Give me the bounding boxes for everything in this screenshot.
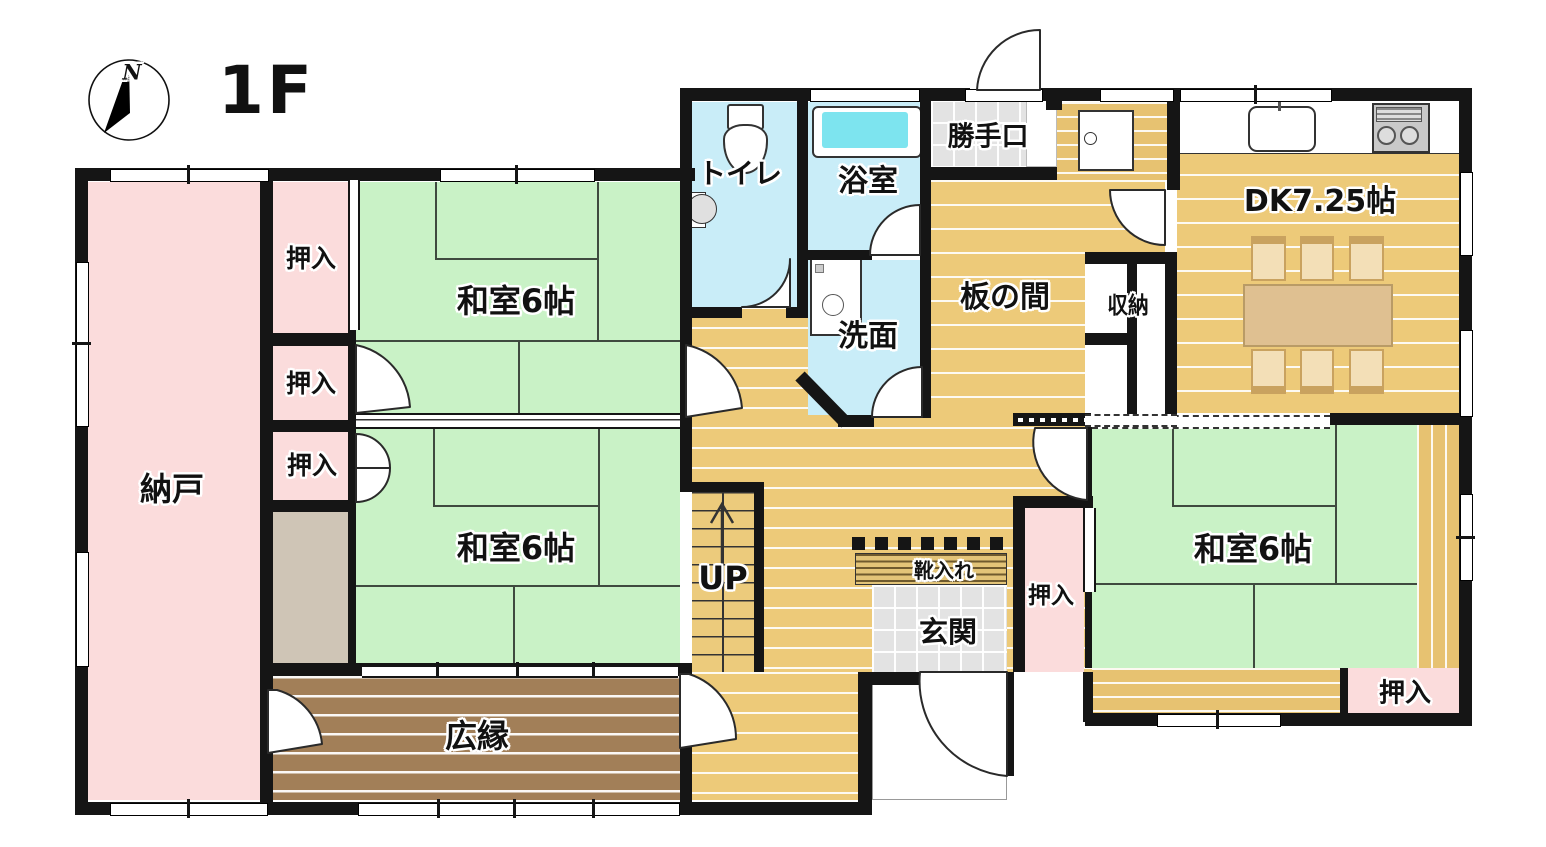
slider-tick [516,662,519,677]
wall [692,307,742,318]
label-shuno: 収納 [1107,286,1148,320]
window [1460,330,1473,417]
wall [858,672,872,815]
wall [262,420,356,432]
window [76,552,89,667]
dining-chair [1251,236,1286,281]
dotted-marker [852,537,865,550]
sliding-door [348,180,360,330]
wall [260,168,273,802]
window-tick [1456,536,1475,539]
compass-north-label: N [122,60,141,85]
wall [1046,90,1062,110]
label-kutsuire: 靴入れ [914,555,974,584]
wall [1013,496,1025,672]
sliding-glass-door [362,665,678,678]
wall [1340,668,1348,713]
label-genkan: 玄関 [919,609,977,651]
tatami-line [518,340,520,413]
window-tick [513,799,516,818]
dining-chair [1300,236,1334,281]
wall [1165,252,1177,420]
label-bath: 浴室 [838,156,898,200]
floor-plan: N 1F 納戸 押入 押入 押入 和室6帖 和室6帖 和室6帖 広縁 トイレ 浴… [0,0,1546,847]
dining-chair [1300,349,1334,394]
wall [680,101,692,482]
wall-dotted-rail [1018,418,1088,422]
tatami-line [1335,425,1337,583]
hallway-south-floor [692,672,858,800]
slider-tick [436,662,439,677]
label-hiroen: 広縁 [445,711,509,757]
label-oshiire-1: 押入 [286,239,336,275]
label-senmen: 洗面 [838,311,898,355]
tatami-line [513,585,515,663]
dotted-marker [967,537,980,550]
wall [808,250,872,260]
dotted-marker [990,537,1003,550]
label-oshiire-4: 押入 [1028,576,1074,610]
label-oshiire-3: 押入 [287,446,337,482]
wall [680,482,764,492]
tatami-line [598,425,600,585]
katteguchi-door [977,30,1040,90]
dotted-marker [875,537,888,550]
window-tick [187,165,190,184]
wall [754,492,764,672]
window-tick [515,165,518,184]
washing-machine-dial [815,264,824,273]
window-tick [72,342,91,345]
sliding-door-rail [1085,414,1177,427]
window-tick [1254,85,1257,104]
label-katteguchi: 勝手口 [948,115,1029,154]
label-washitsu-3: 和室6帖 [1194,524,1312,570]
tatami-line [356,585,680,587]
wall [797,101,808,318]
window [1460,172,1473,256]
window [810,89,920,102]
stove-grill [1376,107,1422,122]
dotted-marker [944,537,957,550]
sliding-door [1083,508,1096,592]
window-tick [187,799,190,818]
kitchen-sink [1248,106,1316,152]
wall [858,672,920,685]
wall [348,418,356,668]
stove-burner-left [1377,126,1396,145]
dotted-marker [921,537,934,550]
label-oshiire-5: 押入 [1379,673,1431,710]
label-up: UP [698,559,747,597]
label-itanoma: 板の間 [960,272,1050,316]
stove-burner-right [1400,126,1419,145]
wall [922,167,1057,180]
tatami-line [597,182,599,340]
window-tick [592,799,595,818]
wall [262,500,356,512]
dining-table [1243,284,1393,347]
window-tick [437,799,440,818]
wall [1085,333,1133,345]
tatami-line [433,505,598,507]
label-toilet: トイレ [698,152,782,192]
katteguchi-mat [1026,100,1057,167]
wall [1085,252,1177,264]
dining-chair [1349,236,1384,281]
window [1157,714,1281,727]
engawa-bottom-floor [1092,668,1340,713]
entrance-porch [872,672,1007,800]
wall [838,415,874,427]
wall [1330,413,1472,425]
label-oshiire-2: 押入 [286,364,336,400]
label-dk: DK7.25帖 [1244,176,1396,220]
tatami-line [433,425,435,505]
tatami-line [1253,583,1255,668]
tatami-line [1092,583,1417,585]
water-heater-knob [1084,132,1097,145]
tatami-line [435,182,437,258]
window [358,803,680,816]
sliding-door [356,413,680,429]
label-nando: 納戸 [140,464,204,510]
tokonoma-floor [273,512,348,663]
door-threshold [965,89,1043,102]
label-washitsu-1: 和室6帖 [457,276,575,322]
label-washitsu-2: 和室6帖 [457,523,575,569]
tatami-line [1172,505,1335,507]
window [1100,89,1174,102]
wall [1167,88,1180,190]
window-tick [1216,710,1219,729]
bathtub-water [822,112,908,148]
tatami-line [1172,425,1174,505]
dining-chair [1251,349,1286,394]
wall [680,663,692,678]
dotted-marker [898,537,911,550]
tatami-line [435,258,597,260]
wall [1083,672,1093,722]
page-title: 1F [218,52,315,129]
wall [680,742,692,802]
wall [920,101,931,418]
dining-chair [1349,349,1384,394]
entrance-door-leaf [1007,672,1014,776]
wall [1013,496,1093,508]
slider-tick [592,662,595,677]
wall [262,333,356,346]
